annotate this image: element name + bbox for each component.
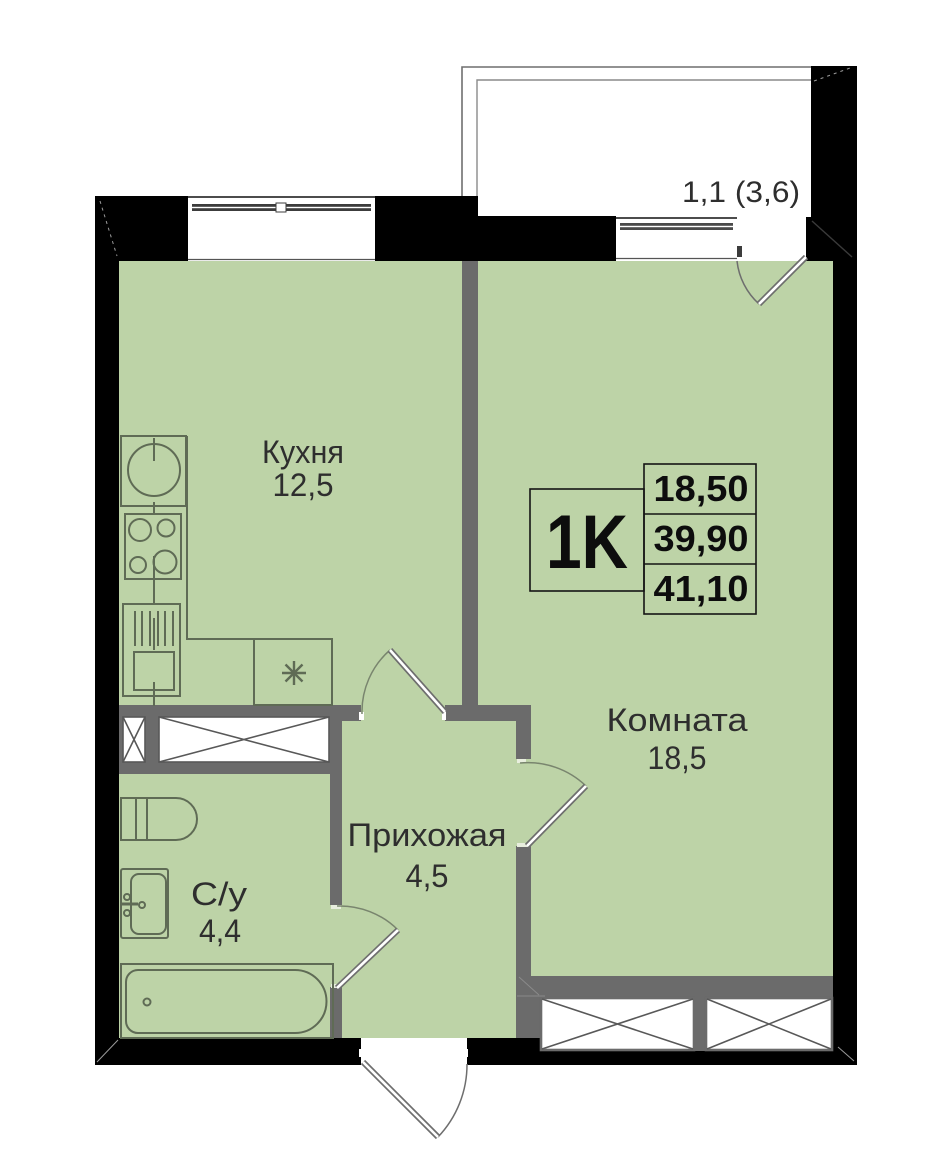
svg-text:4,5: 4,5 [406, 858, 449, 894]
svg-text:Кухня: Кухня [262, 434, 344, 470]
svg-text:41,10: 41,10 [654, 568, 749, 609]
svg-text:4,4: 4,4 [199, 913, 241, 949]
svg-text:1,1 (3,6): 1,1 (3,6) [682, 176, 800, 209]
svg-text:18,5: 18,5 [648, 740, 707, 776]
svg-text:18,50: 18,50 [654, 468, 749, 509]
svg-text:Комната: Комната [607, 702, 748, 738]
svg-text:С/у: С/у [191, 876, 247, 912]
svg-text:39,90: 39,90 [654, 518, 749, 559]
svg-text:Прихожая: Прихожая [348, 817, 507, 853]
svg-text:1K: 1K [546, 500, 628, 585]
svg-text:12,5: 12,5 [273, 467, 334, 503]
